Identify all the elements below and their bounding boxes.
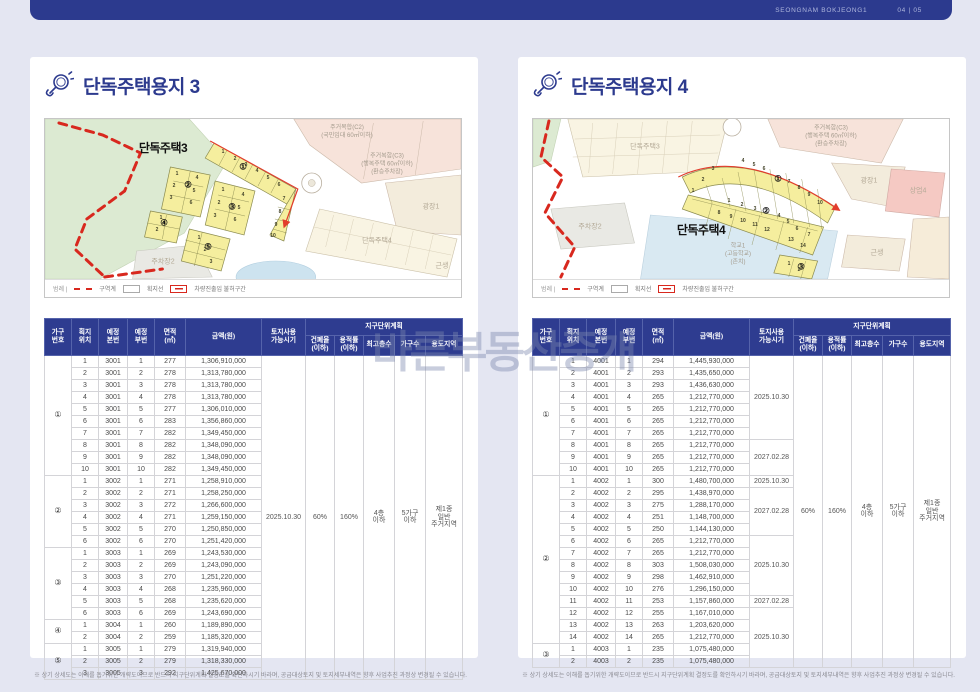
table-cell: 1,435,650,000 xyxy=(674,367,750,379)
table-cell: 10 xyxy=(560,583,587,595)
table-cell: 9 xyxy=(616,451,643,463)
table-cell: 1,203,620,000 xyxy=(674,619,750,631)
table-cell: 1,250,850,000 xyxy=(186,523,262,535)
legend-item-lotline: 획지선 xyxy=(635,284,652,293)
table-cell: 271 xyxy=(155,475,186,487)
legend-swatch-noentry xyxy=(170,285,187,293)
table-cell: 294 xyxy=(643,355,674,367)
table-cell: 4002 xyxy=(587,487,616,499)
table-cell: 8 xyxy=(560,439,587,451)
magnifier-icon xyxy=(44,71,74,99)
table-cell: 4 xyxy=(616,391,643,403)
table-cell: 278 xyxy=(155,391,186,403)
table-cell: 265 xyxy=(643,463,674,475)
column-header: 용적률 (이하) xyxy=(335,336,364,356)
table-cell: 4002 xyxy=(587,595,616,607)
legend-item-boundary: 구역계 xyxy=(587,284,604,293)
site-map-panel: 단독주택4단독주택3주거복합(C3) (행복주택 60㎡이하) (환승주차장)광… xyxy=(532,118,950,298)
table-cell: 279 xyxy=(155,643,186,655)
table-cell: 5 xyxy=(72,523,99,535)
table-cell: 279 xyxy=(155,655,186,667)
block-number-cell: ② xyxy=(45,475,72,547)
table-cell: 3002 xyxy=(99,475,128,487)
column-header: 예정 본번 xyxy=(587,319,616,356)
column-header: 금액(원) xyxy=(186,319,262,356)
table-cell: 8 xyxy=(128,439,155,451)
table-cell: 265 xyxy=(643,451,674,463)
page-title-row: 단독주택용지 4 xyxy=(532,71,688,99)
table-cell: 10 xyxy=(616,583,643,595)
table-cell: 1,243,530,000 xyxy=(186,547,262,559)
column-header: 가구수 xyxy=(395,336,426,356)
table-cell: 2 xyxy=(616,487,643,499)
table-cell: 1,148,700,000 xyxy=(674,511,750,523)
district-plan-cell: 5가구 이하 xyxy=(395,355,426,679)
table-cell: 277 xyxy=(155,403,186,415)
table-cell: 5 xyxy=(616,523,643,535)
table-cell: 4 xyxy=(72,511,99,523)
table-cell: 3 xyxy=(616,379,643,391)
table-cell: 1 xyxy=(128,475,155,487)
map-graphic xyxy=(533,119,949,279)
table-cell: 260 xyxy=(155,619,186,631)
column-header: 건폐율 (이하) xyxy=(306,336,335,356)
table-cell: 12 xyxy=(560,607,587,619)
brand-text: SEONGNAM BOKJEONG1 xyxy=(775,7,867,14)
table-cell: 3001 xyxy=(99,439,128,451)
legend-swatch-boundary xyxy=(74,288,92,290)
table-cell: 3004 xyxy=(99,631,128,643)
table-cell: 1,348,090,000 xyxy=(186,451,262,463)
column-header: 획지 위치 xyxy=(72,319,99,356)
table-cell: 3 xyxy=(72,571,99,583)
table-cell: 3 xyxy=(616,499,643,511)
table-cell: 1,296,150,000 xyxy=(674,583,750,595)
table-cell: 5 xyxy=(128,403,155,415)
column-header: 토지사용 가능시기 xyxy=(750,319,794,356)
column-header: 가구수 xyxy=(883,336,914,356)
column-group-header: 지구단위계획 xyxy=(306,319,463,336)
table-cell: 5 xyxy=(128,523,155,535)
table-cell: 1 xyxy=(128,619,155,631)
district-plan-cell: 160% xyxy=(335,355,364,679)
table-cell: 6 xyxy=(72,415,99,427)
table-cell: 6 xyxy=(72,535,99,547)
table-cell: 3001 xyxy=(99,463,128,475)
table-cell: 4 xyxy=(560,391,587,403)
table-cell: 1,189,890,000 xyxy=(186,619,262,631)
page-title-row: 단독주택용지 3 xyxy=(44,71,200,99)
table-cell: 7 xyxy=(128,427,155,439)
table-cell: 3 xyxy=(72,379,99,391)
table-cell: 3002 xyxy=(99,535,128,547)
table-cell: 1,313,780,000 xyxy=(186,379,262,391)
table-cell: 1,212,770,000 xyxy=(674,439,750,451)
table-cell: 3001 xyxy=(99,379,128,391)
table-cell: 2 xyxy=(72,559,99,571)
table-cell: 3004 xyxy=(99,619,128,631)
table-cell: 2 xyxy=(560,367,587,379)
column-header: 용적률 (이하) xyxy=(823,336,852,356)
table-cell: 1,258,250,000 xyxy=(186,487,262,499)
table-cell: 1,259,150,000 xyxy=(186,511,262,523)
table-cell: 11 xyxy=(560,595,587,607)
page-number: 04 | 05 xyxy=(897,7,922,14)
table-cell: 1,235,960,000 xyxy=(186,583,262,595)
column-header: 예정 본번 xyxy=(99,319,128,356)
table-cell: 2 xyxy=(72,367,99,379)
table-cell: 303 xyxy=(643,559,674,571)
table-cell: 278 xyxy=(155,379,186,391)
table-cell: 283 xyxy=(155,415,186,427)
table-cell: 1,235,620,000 xyxy=(186,595,262,607)
table-cell: 7 xyxy=(72,427,99,439)
table-cell: 4001 xyxy=(587,403,616,415)
table-cell: 1,348,090,000 xyxy=(186,439,262,451)
table-cell: 3 xyxy=(560,499,587,511)
table-cell: 3001 xyxy=(99,391,128,403)
top-bar: SEONGNAM BOKJEONG1 04 | 05 xyxy=(30,0,952,20)
table-cell: 1 xyxy=(72,475,99,487)
table-cell: 2 xyxy=(72,631,99,643)
table-cell: 1 xyxy=(72,547,99,559)
table-cell: 278 xyxy=(155,367,186,379)
table-cell: 282 xyxy=(155,427,186,439)
table-cell: 1,318,330,000 xyxy=(186,655,262,667)
table-cell: 4 xyxy=(128,511,155,523)
table-cell: 3001 xyxy=(99,355,128,367)
table-cell: 5 xyxy=(560,403,587,415)
table-cell: 2 xyxy=(128,559,155,571)
column-header: 면적 (㎡) xyxy=(643,319,674,356)
table-cell: 6 xyxy=(128,607,155,619)
table-cell: 3 xyxy=(128,379,155,391)
table-cell: 272 xyxy=(155,499,186,511)
table-cell: 265 xyxy=(643,535,674,547)
table-cell: 4 xyxy=(72,391,99,403)
table-cell: 4001 xyxy=(587,391,616,403)
table-cell: 8 xyxy=(616,439,643,451)
table-cell: 5 xyxy=(72,403,99,415)
table-cell: 1 xyxy=(560,643,587,655)
table-cell: 1,144,130,000 xyxy=(674,523,750,535)
table-cell: 1,266,600,000 xyxy=(186,499,262,511)
district-plan-cell: 160% xyxy=(823,355,852,667)
table-cell: 3002 xyxy=(99,487,128,499)
land-use-date-cell: 2025.10.30 xyxy=(750,475,794,487)
table-cell: 235 xyxy=(643,643,674,655)
table-cell: 10 xyxy=(616,463,643,475)
column-group-header: 지구단위계획 xyxy=(794,319,951,336)
site-map: 단독주택3주거복합(C2) (국민임대 60㎡이하)주거복합(C3) (행복주택… xyxy=(45,119,461,279)
footnote-left: ※ 상기 상세도는 이해를 돕기위한 개략도이므로 반드시 지구단위계획 결정도… xyxy=(34,670,479,679)
table-cell: 3001 xyxy=(99,427,128,439)
table-cell: 3001 xyxy=(99,367,128,379)
table-cell: 4001 xyxy=(587,463,616,475)
block-number-cell: ② xyxy=(533,475,560,643)
table-cell: 6 xyxy=(128,415,155,427)
table-cell: 293 xyxy=(643,379,674,391)
table-cell: 253 xyxy=(643,595,674,607)
table-cell: 5 xyxy=(616,403,643,415)
district-plan-cell: 60% xyxy=(306,355,335,679)
table-cell: 1 xyxy=(128,547,155,559)
table-cell: 4003 xyxy=(587,643,616,655)
table-cell: 275 xyxy=(643,499,674,511)
table-cell: 1,212,770,000 xyxy=(674,463,750,475)
table-cell: 268 xyxy=(155,595,186,607)
table-cell: 1 xyxy=(128,355,155,367)
district-plan-cell: 60% xyxy=(794,355,823,667)
table-cell: 9 xyxy=(72,451,99,463)
table-cell: 4002 xyxy=(587,559,616,571)
table-cell: 2 xyxy=(128,487,155,499)
table-cell: 8 xyxy=(72,439,99,451)
table-cell: 1,212,770,000 xyxy=(674,391,750,403)
table-cell: 265 xyxy=(643,391,674,403)
table-cell: 1,356,860,000 xyxy=(186,415,262,427)
table-cell: 259 xyxy=(155,631,186,643)
table-cell: 1,075,480,000 xyxy=(674,643,750,655)
land-use-date-cell: 2025.10.30 xyxy=(750,535,794,595)
legend-item-noentry: 차량진출입 불허구간 xyxy=(682,284,733,293)
table-cell: 1,212,770,000 xyxy=(674,547,750,559)
page-left: 단독주택용지 3 xyxy=(30,57,478,658)
table-cell: 1,288,170,000 xyxy=(674,499,750,511)
land-use-date-cell: 2025.10.30 xyxy=(750,355,794,439)
table-cell: 5 xyxy=(128,595,155,607)
table-cell: 3005 xyxy=(99,655,128,667)
block-number-cell: ④ xyxy=(45,619,72,643)
table-cell: 265 xyxy=(643,427,674,439)
table-cell: 3003 xyxy=(99,559,128,571)
table-cell: 13 xyxy=(560,619,587,631)
table-cell: 265 xyxy=(643,547,674,559)
table-cell: 3 xyxy=(128,571,155,583)
table-cell: 10 xyxy=(128,463,155,475)
table-cell: 265 xyxy=(643,403,674,415)
table-cell: 235 xyxy=(643,655,674,667)
table-cell: 298 xyxy=(643,571,674,583)
table-cell: 269 xyxy=(155,607,186,619)
table-cell: 1,212,770,000 xyxy=(674,415,750,427)
column-header: 가구 번호 xyxy=(533,319,560,356)
table-cell: 3001 xyxy=(99,451,128,463)
table-cell: 270 xyxy=(155,523,186,535)
price-table-right: 가구 번호획지 위치예정 본번예정 부번면적 (㎡)금액(원)토지사용 가능시기… xyxy=(532,318,951,668)
table-cell: 1,212,770,000 xyxy=(674,451,750,463)
table-cell: 11 xyxy=(616,595,643,607)
table-row: ①1300112771,306,910,0002025.10.3060%160%… xyxy=(45,355,463,367)
table-cell: 2 xyxy=(72,487,99,499)
table-cell: 1,243,090,000 xyxy=(186,559,262,571)
site-map: 단독주택4단독주택3주거복합(C3) (행복주택 60㎡이하) (환승주차장)광… xyxy=(533,119,949,279)
table-cell: 4 xyxy=(72,583,99,595)
table-cell: 276 xyxy=(643,583,674,595)
page-right: 단독주택용지 4 xyxy=(518,57,966,658)
land-use-date-cell: 2027.02.28 xyxy=(750,487,794,535)
legend-item-boundary: 구역계 xyxy=(99,284,116,293)
table-cell: 4 xyxy=(616,511,643,523)
table-cell: 269 xyxy=(155,559,186,571)
legend-swatch-lotline xyxy=(123,285,140,293)
table-cell: 6 xyxy=(560,535,587,547)
table-cell: 8 xyxy=(560,559,587,571)
column-header: 예정 부번 xyxy=(616,319,643,356)
table-cell: 2 xyxy=(616,655,643,667)
table-cell: 4002 xyxy=(587,511,616,523)
legend-swatch-lotline xyxy=(611,285,628,293)
table-cell: 263 xyxy=(643,619,674,631)
table-cell: 4001 xyxy=(587,367,616,379)
column-header: 최고층수 xyxy=(364,336,395,356)
column-header: 획지 위치 xyxy=(560,319,587,356)
table-cell: 1,251,420,000 xyxy=(186,535,262,547)
table-cell: 7 xyxy=(560,547,587,559)
table-cell: 4002 xyxy=(587,619,616,631)
land-use-date-cell: 2025.10.30 xyxy=(262,355,306,679)
table-cell: 1,075,480,000 xyxy=(674,655,750,667)
legend-label: 범례 | xyxy=(541,284,555,293)
table-cell: 269 xyxy=(155,547,186,559)
table-cell: 14 xyxy=(560,631,587,643)
table-cell: 4002 xyxy=(587,631,616,643)
table-cell: 3005 xyxy=(99,643,128,655)
table-cell: 7 xyxy=(560,427,587,439)
table-cell: 4002 xyxy=(587,583,616,595)
footnote-right: ※ 상기 상세도는 이해를 돕기위한 개략도이므로 반드시 지구단위계획 결정도… xyxy=(522,670,967,679)
table-cell: 1,212,770,000 xyxy=(674,535,750,547)
map-legend: 범례 | 구역계 획지선 차량진출입 불허구간 xyxy=(45,279,461,297)
table-cell: 1 xyxy=(72,643,99,655)
legend-label: 범례 | xyxy=(53,284,67,293)
table-cell: 14 xyxy=(616,631,643,643)
column-header: 용도지역 xyxy=(914,336,951,356)
table-cell: 251 xyxy=(643,511,674,523)
table-cell: 4 xyxy=(128,391,155,403)
block-number-cell: ① xyxy=(45,355,72,475)
column-header: 토지사용 가능시기 xyxy=(262,319,306,356)
table-cell: 2 xyxy=(560,655,587,667)
table-cell: 4001 xyxy=(587,427,616,439)
table-cell: 3003 xyxy=(99,595,128,607)
table-cell: 7 xyxy=(616,427,643,439)
table-cell: 1,508,030,000 xyxy=(674,559,750,571)
district-plan-cell: 제1종 일반 주거지역 xyxy=(914,355,951,667)
legend-swatch-noentry xyxy=(658,285,675,293)
table-cell: 7 xyxy=(616,547,643,559)
land-use-date-cell: 2025.10.30 xyxy=(750,607,794,667)
table-cell: 277 xyxy=(155,355,186,367)
table-cell: 1,349,450,000 xyxy=(186,427,262,439)
table-cell: 2 xyxy=(128,655,155,667)
table-cell: 4 xyxy=(560,511,587,523)
table-cell: 4002 xyxy=(587,607,616,619)
column-header: 용도지역 xyxy=(426,336,463,356)
block-number-cell: ③ xyxy=(45,547,72,619)
magnifier-icon xyxy=(532,71,562,99)
table-cell: 1,313,780,000 xyxy=(186,367,262,379)
table-cell: 4002 xyxy=(587,535,616,547)
district-plan-cell: 5가구 이하 xyxy=(883,355,914,667)
table-cell: 10 xyxy=(72,463,99,475)
table-cell: 4001 xyxy=(587,379,616,391)
table-cell: 1,251,220,000 xyxy=(186,571,262,583)
table-cell: 1 xyxy=(560,475,587,487)
table-cell: 4001 xyxy=(587,451,616,463)
column-header: 면적 (㎡) xyxy=(155,319,186,356)
table-cell: 268 xyxy=(155,583,186,595)
table-cell: 1 xyxy=(128,643,155,655)
site-map-panel: 단독주택3주거복합(C2) (국민임대 60㎡이하)주거복합(C3) (행복주택… xyxy=(44,118,462,298)
table-cell: 9 xyxy=(560,451,587,463)
column-header: 금액(원) xyxy=(674,319,750,356)
table-cell: 295 xyxy=(643,487,674,499)
table-cell: 6 xyxy=(616,415,643,427)
table-cell: 282 xyxy=(155,463,186,475)
district-plan-cell: 4층 이하 xyxy=(364,355,395,679)
legend-item-lotline: 획지선 xyxy=(147,284,164,293)
table-cell: 13 xyxy=(616,619,643,631)
table-cell: 1,306,010,000 xyxy=(186,403,262,415)
table-cell: 282 xyxy=(155,451,186,463)
table-cell: 3003 xyxy=(99,547,128,559)
table-cell: 265 xyxy=(643,439,674,451)
table-cell: 1,212,770,000 xyxy=(674,427,750,439)
table-cell: 3002 xyxy=(99,499,128,511)
land-use-date-cell: 2027.02.28 xyxy=(750,595,794,607)
map-legend: 범례 | 구역계 획지선 차량진출입 불허구간 xyxy=(533,279,949,297)
table-cell: 4002 xyxy=(587,499,616,511)
table-cell: 1 xyxy=(72,355,99,367)
table-cell: 2 xyxy=(128,367,155,379)
table-cell: 6 xyxy=(560,415,587,427)
table-cell: 1,167,010,000 xyxy=(674,607,750,619)
column-header: 예정 부번 xyxy=(128,319,155,356)
table-cell: 3001 xyxy=(99,403,128,415)
table-cell: 2 xyxy=(560,487,587,499)
table-cell: 4001 xyxy=(587,439,616,451)
table-cell: 250 xyxy=(643,523,674,535)
table-cell: 3 xyxy=(560,379,587,391)
table-cell: 4002 xyxy=(587,523,616,535)
table-cell: 1,462,910,000 xyxy=(674,571,750,583)
district-plan-cell: 4층 이하 xyxy=(852,355,883,667)
table-cell: 1 xyxy=(616,643,643,655)
table-cell: 1,349,450,000 xyxy=(186,463,262,475)
table-cell: 282 xyxy=(155,439,186,451)
table-cell: 265 xyxy=(643,415,674,427)
table-cell: 1 xyxy=(560,355,587,367)
table-cell: 1,306,910,000 xyxy=(186,355,262,367)
table-cell: 3002 xyxy=(99,511,128,523)
table-cell: 5 xyxy=(560,523,587,535)
table-cell: 1 xyxy=(72,619,99,631)
table-cell: 3 xyxy=(128,499,155,511)
table-cell: 255 xyxy=(643,607,674,619)
table-cell: 293 xyxy=(643,367,674,379)
table-cell: 3001 xyxy=(99,415,128,427)
table-cell: 1 xyxy=(616,475,643,487)
table-cell: 4002 xyxy=(587,547,616,559)
table-cell: 1,480,700,000 xyxy=(674,475,750,487)
table-cell: 10 xyxy=(560,463,587,475)
district-plan-cell: 제1종 일반 주거지역 xyxy=(426,355,463,679)
column-header: 최고층수 xyxy=(852,336,883,356)
block-number-cell: ① xyxy=(533,355,560,475)
table-cell: 6 xyxy=(128,535,155,547)
table-cell: 271 xyxy=(155,487,186,499)
